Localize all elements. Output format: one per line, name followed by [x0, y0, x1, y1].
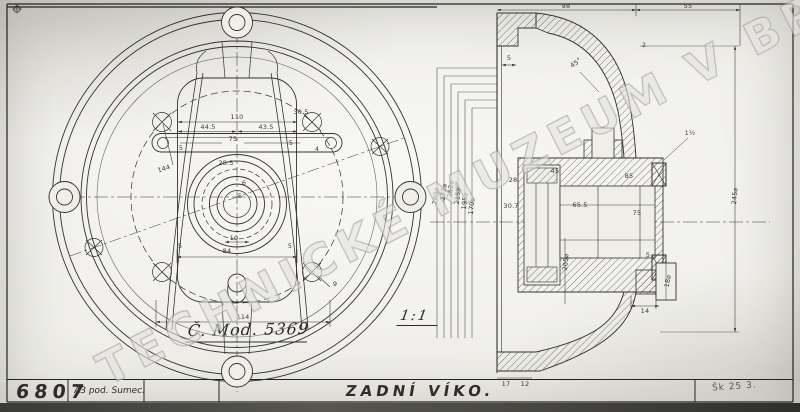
- dimension-label: 5: [179, 145, 183, 152]
- scan-edge-strip: [0, 403, 800, 412]
- dimension-label: 4: [315, 146, 319, 153]
- dimension-label: 45: [551, 168, 560, 175]
- dimension-label: 44.5: [200, 124, 215, 131]
- dimension-label: 110: [230, 114, 243, 121]
- dimension-label: 98: [562, 3, 571, 10]
- dimension-label: 5: [178, 243, 182, 250]
- dimension-label: 75: [633, 210, 642, 217]
- section-view: [430, 4, 770, 378]
- dimension-label: 14: [641, 308, 650, 315]
- model-number-note: Č. Mod. 5369: [187, 319, 310, 340]
- format-note: A3 pod. Sumec.: [73, 386, 145, 396]
- drawing-title: ZADNÍ VÍKO.: [329, 382, 512, 400]
- dimension-label: 84: [223, 248, 232, 255]
- dimension-label: 75: [229, 136, 238, 143]
- dimension-label: 85: [625, 173, 634, 180]
- dimension-label: 30.7: [503, 203, 518, 210]
- dimension-label: 2: [642, 42, 646, 49]
- dimension-label: 1½: [685, 130, 696, 137]
- dimension-label: 55: [684, 3, 693, 10]
- scanned-technical-drawing: 11044.543.57555428.514430.5651084559114 …: [0, 0, 800, 412]
- dimension-label: 28: [509, 177, 518, 184]
- dimension-label: 245⌀: [731, 187, 739, 205]
- dimension-label: 5: [289, 140, 293, 147]
- dimension-label: 5: [646, 252, 650, 259]
- dimension-label: 5: [507, 55, 511, 62]
- dimension-label: 9: [333, 281, 337, 288]
- dimension-label: 43.5: [258, 124, 273, 131]
- scale-note: 1:1: [396, 308, 440, 326]
- dimension-label: 28.5: [218, 160, 233, 167]
- dimension-label: 6: [242, 180, 246, 187]
- drawing-linework: [0, 0, 800, 412]
- dimension-label: 170⌀: [468, 197, 477, 215]
- dimension-label: 65.5: [572, 202, 587, 209]
- dimension-label: 5: [238, 193, 242, 200]
- dimension-label: 30.5: [293, 109, 308, 116]
- dimension-label: 12: [521, 381, 530, 388]
- dimension-label: 205⌀: [562, 253, 570, 271]
- dimension-label: 10: [230, 235, 239, 242]
- dimension-label: 5: [288, 243, 292, 250]
